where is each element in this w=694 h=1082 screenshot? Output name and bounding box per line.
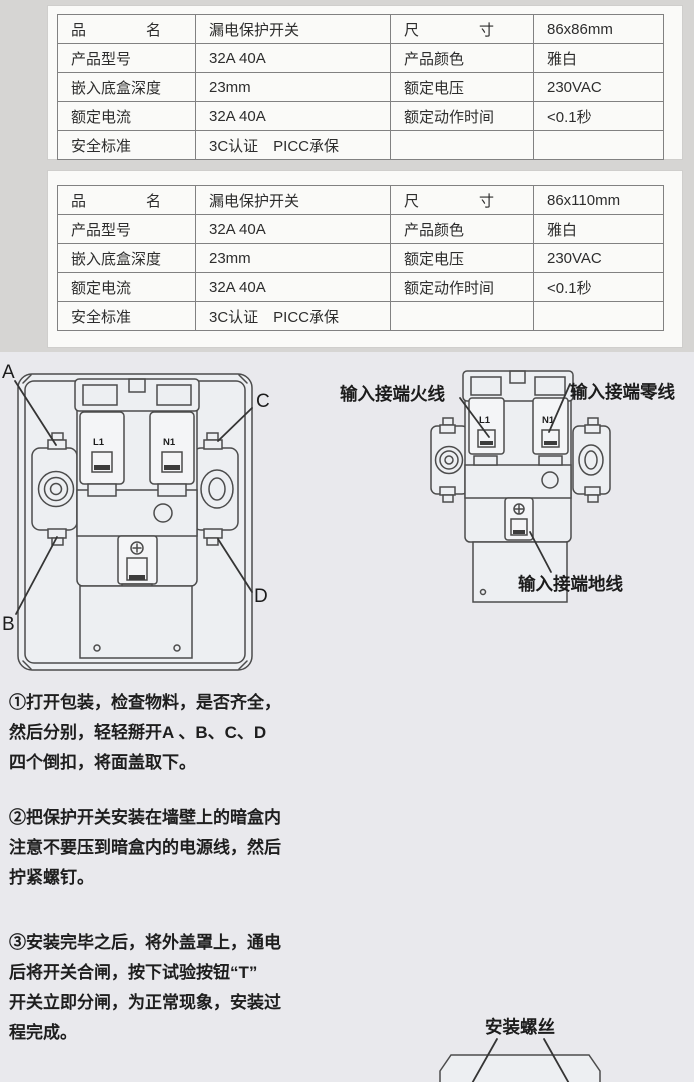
spec-label-cell: 额定动作时间 — [391, 102, 534, 131]
terminal-n1-label: N1 — [163, 437, 176, 448]
spec-label-cell: 额定动作时间 — [391, 273, 534, 302]
switch-body-front — [440, 1055, 600, 1082]
table-row: 品 名 漏电保护开关 尺 寸 86x86mm — [58, 15, 664, 44]
spec-value-cell: 3C认证 PICC承保 — [196, 302, 391, 331]
input-neutral-label: 输入接端零线 — [570, 382, 675, 402]
ground-terminal — [118, 536, 157, 593]
table-row: 安全标准 3C认证 PICC承保 — [58, 302, 664, 331]
table-row: 嵌入底盒深度 23mm 额定电压 230VAC — [58, 244, 664, 273]
front-view-diagram: ON T — [360, 1007, 694, 1082]
corner-label-b: B — [2, 614, 15, 635]
instruction-step-2: ②把保护开关安装在墙壁上的暗盒内 注意不要压到暗盒内的电源线，然后 拧紧螺钉。 — [9, 803, 359, 893]
spec-value-cell — [534, 131, 664, 160]
spec-value-cell: 32A 40A — [196, 102, 391, 131]
spec-value-cell: 23mm — [196, 73, 391, 102]
spec-label-cell: 产品型号 — [58, 215, 196, 244]
spec-value-cell: 3C认证 PICC承保 — [196, 131, 391, 160]
spec-value-cell: 雅白 — [534, 44, 664, 73]
table-row: 产品型号 32A 40A 产品颜色 雅白 — [58, 215, 664, 244]
mounting-ear-right — [573, 418, 610, 502]
page: 品 名 漏电保护开关 尺 寸 86x86mm 产品型号 32A 40A 产品颜色… — [0, 0, 694, 1082]
spec-label-cell: 安全标准 — [58, 131, 196, 160]
spec-value-cell — [534, 302, 664, 331]
spec-value-cell: 32A 40A — [196, 273, 391, 302]
spec-label-cell: 额定电流 — [58, 273, 196, 302]
spec-label-cell: 额定电流 — [58, 102, 196, 131]
spec-value-cell: 32A 40A — [196, 215, 391, 244]
input-live-label: 输入接端火线 — [340, 384, 445, 404]
spec-value-cell: <0.1秒 — [534, 273, 664, 302]
spec-value-cell: 漏电保护开关 — [196, 15, 391, 44]
table-row: 品 名 漏电保护开关 尺 寸 86x110mm — [58, 186, 664, 215]
spec-label-cell: 安全标准 — [58, 302, 196, 331]
spec-panel-1: 品 名 漏电保护开关 尺 寸 86x86mm 产品型号 32A 40A 产品颜色… — [47, 5, 683, 160]
spec-label-cell: 产品颜色 — [391, 44, 534, 73]
mounting-ear-right — [193, 433, 238, 545]
spec-value-cell: 23mm — [196, 244, 391, 273]
mechanism-module: L1 N1 — [463, 371, 573, 602]
spec-label-cell: 尺 寸 — [391, 15, 534, 44]
table-row: 额定电流 32A 40A 额定动作时间 <0.1秒 — [58, 102, 664, 131]
spec-section: 品 名 漏电保护开关 尺 寸 86x86mm 产品型号 32A 40A 产品颜色… — [0, 0, 694, 352]
spec-label-cell: 嵌入底盒深度 — [58, 244, 196, 273]
spec-label-cell — [391, 131, 534, 160]
corner-label-a: A — [2, 362, 15, 383]
spec-value-cell: <0.1秒 — [534, 102, 664, 131]
table-row: 产品型号 32A 40A 产品颜色 雅白 — [58, 44, 664, 73]
spec-label-cell: 额定电压 — [391, 73, 534, 102]
spec-value-cell: 32A 40A — [196, 44, 391, 73]
corner-label-c: C — [256, 391, 270, 412]
spec-panel-2: 品 名 漏电保护开关 尺 寸 86x110mm 产品型号 32A 40A 产品颜… — [47, 170, 683, 348]
input-terminal-diagram: L1 N1 — [330, 362, 694, 610]
ground-terminal — [505, 498, 533, 540]
spec-label-cell — [391, 302, 534, 331]
mechanism-module: L1 N1 — [75, 379, 199, 658]
spec-value-cell: 230VAC — [534, 73, 664, 102]
corner-label-d: D — [254, 586, 268, 607]
spec-label-cell: 产品型号 — [58, 44, 196, 73]
spec-value-cell: 86x110mm — [534, 186, 664, 215]
terminal-l1-label: L1 — [479, 415, 491, 426]
spec-label-cell: 产品颜色 — [391, 215, 534, 244]
mount-screw-label: 安装螺丝 — [485, 1017, 555, 1037]
installation-section: L1 N1 — [0, 352, 694, 1082]
back-view-diagram: L1 N1 — [0, 352, 270, 672]
mounting-ear-left — [32, 433, 77, 545]
instruction-step-1: ①打开包装，检查物料，是否齐全， 然后分别，轻轻掰开A 、B、C、D 四个倒扣，… — [9, 688, 359, 778]
spec-label-cell: 品 名 — [58, 186, 196, 215]
terminal-l1-label: L1 — [93, 437, 105, 448]
input-ground-label: 输入接端地线 — [518, 574, 623, 594]
spec-value-cell: 86x86mm — [534, 15, 664, 44]
spec-value-cell: 漏电保护开关 — [196, 186, 391, 215]
front-view-wrapper: ON T — [0, 1004, 694, 1082]
table-row: 嵌入底盒深度 23mm 额定电压 230VAC — [58, 73, 664, 102]
spec-value-cell: 雅白 — [534, 215, 664, 244]
spec-table-2: 品 名 漏电保护开关 尺 寸 86x110mm 产品型号 32A 40A 产品颜… — [57, 185, 664, 331]
spec-label-cell: 品 名 — [58, 15, 196, 44]
spec-label-cell: 尺 寸 — [391, 186, 534, 215]
spec-label-cell: 额定电压 — [391, 244, 534, 273]
spec-value-cell: 230VAC — [534, 244, 664, 273]
spec-table-1: 品 名 漏电保护开关 尺 寸 86x86mm 产品型号 32A 40A 产品颜色… — [57, 14, 664, 160]
table-row: 安全标准 3C认证 PICC承保 — [58, 131, 664, 160]
mounting-ear-left — [431, 418, 468, 502]
spec-label-cell: 嵌入底盒深度 — [58, 73, 196, 102]
table-row: 额定电流 32A 40A 额定动作时间 <0.1秒 — [58, 273, 664, 302]
terminal-n1: N1 — [150, 412, 194, 496]
terminal-l1: L1 — [80, 412, 124, 496]
